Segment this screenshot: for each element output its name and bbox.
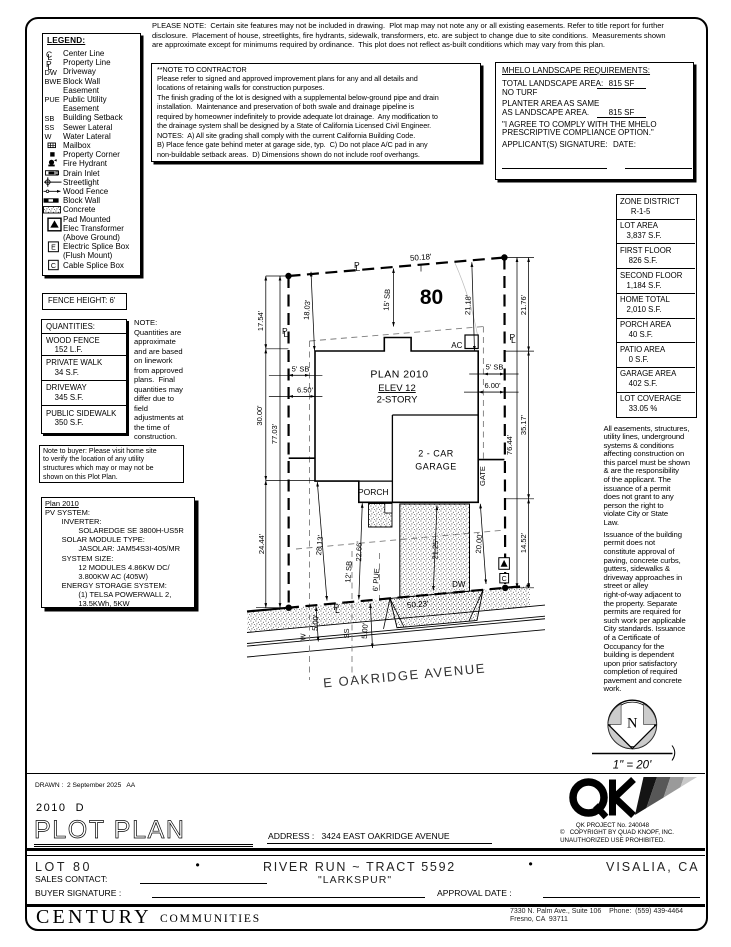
svg-text:5' SB: 5' SB bbox=[486, 363, 504, 372]
svg-text:50.18': 50.18' bbox=[410, 252, 433, 263]
svg-text:2 - CAR: 2 - CAR bbox=[418, 449, 454, 459]
svg-text:L: L bbox=[511, 335, 516, 345]
svg-text:W: W bbox=[299, 633, 308, 641]
svg-text:6.50': 6.50' bbox=[297, 386, 314, 395]
svg-text:E: E bbox=[51, 245, 56, 252]
svg-text:E OAKRIDGE AVENUE: E OAKRIDGE AVENUE bbox=[322, 661, 486, 691]
svg-text:76.44': 76.44' bbox=[505, 434, 514, 455]
svg-text:15' SB: 15' SB bbox=[382, 289, 393, 311]
svg-text:L: L bbox=[335, 605, 340, 615]
svg-text:80: 80 bbox=[420, 286, 443, 309]
svg-text:DW: DW bbox=[452, 580, 466, 589]
svg-text:PORCH: PORCH bbox=[358, 487, 389, 497]
svg-text:22.66': 22.66' bbox=[354, 541, 364, 562]
svg-text:5.00': 5.00' bbox=[360, 622, 370, 639]
svg-text:PLAN 2010: PLAN 2010 bbox=[370, 369, 428, 381]
svg-text:21.25': 21.25' bbox=[430, 539, 440, 560]
svg-text:21.76': 21.76' bbox=[519, 294, 528, 315]
svg-text:35.17': 35.17' bbox=[519, 414, 528, 435]
svg-text:21.18': 21.18' bbox=[463, 294, 473, 315]
svg-text:24.44': 24.44' bbox=[257, 533, 266, 554]
svg-text:AC: AC bbox=[451, 341, 462, 350]
svg-text:18.03': 18.03' bbox=[302, 299, 312, 320]
svg-text:5.00': 5.00' bbox=[310, 614, 320, 631]
svg-text:1" = 20': 1" = 20' bbox=[613, 760, 652, 772]
svg-text:C: C bbox=[51, 263, 56, 270]
svg-text:GARAGE: GARAGE bbox=[415, 462, 457, 472]
svg-text:GATE: GATE bbox=[478, 466, 487, 486]
svg-text:30.00': 30.00' bbox=[255, 405, 264, 426]
svg-text:2-STORY: 2-STORY bbox=[377, 395, 418, 406]
svg-text:12' SB: 12' SB bbox=[343, 561, 354, 583]
svg-text:14.52': 14.52' bbox=[519, 532, 528, 553]
svg-text:20.00': 20.00' bbox=[474, 532, 484, 553]
svg-text:5' SB: 5' SB bbox=[292, 365, 310, 374]
svg-text:50.23': 50.23' bbox=[407, 599, 430, 610]
svg-text:L: L bbox=[356, 263, 361, 273]
svg-text:SS: SS bbox=[342, 628, 351, 638]
svg-text:N: N bbox=[627, 716, 638, 732]
svg-text:L: L bbox=[284, 329, 289, 339]
svg-text:77.03': 77.03' bbox=[270, 423, 279, 444]
svg-text:17.54': 17.54' bbox=[256, 310, 265, 331]
svg-text:ELEV 12: ELEV 12 bbox=[378, 383, 416, 394]
svg-text:C: C bbox=[502, 576, 507, 583]
svg-text:6.00': 6.00' bbox=[484, 381, 501, 390]
svg-text:6' PUE: 6' PUE bbox=[371, 568, 382, 592]
